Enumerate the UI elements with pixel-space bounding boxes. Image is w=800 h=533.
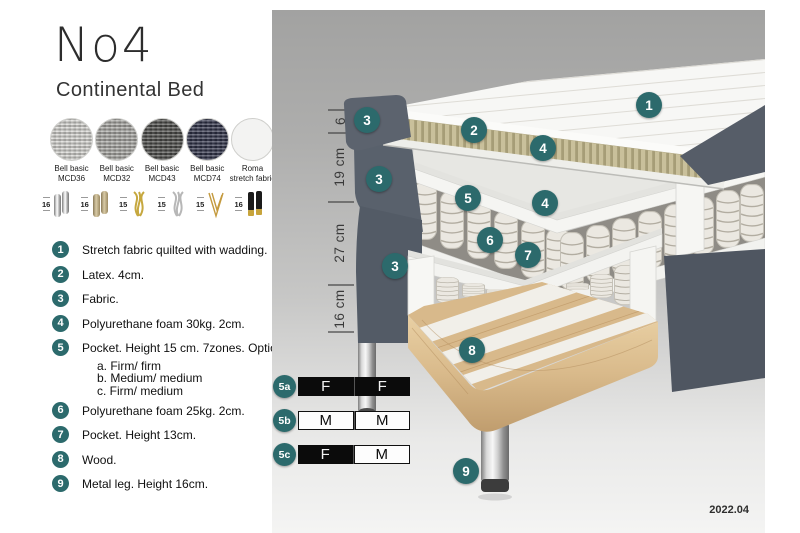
metal-leg-front (481, 424, 509, 481)
legend-number-badge: 2 (52, 266, 69, 283)
cylinder-bronze-leg-icon (91, 189, 111, 219)
legend-text: Wood. (82, 451, 116, 467)
legend-item: 3 Fabric. (52, 290, 267, 307)
legend-item: 8 Wood. (52, 451, 267, 468)
leg-option: 16 (42, 189, 81, 219)
fabric-swatch-icon (50, 118, 93, 161)
firmness-cell: M (298, 411, 354, 430)
legend-number-badge: 3 (52, 290, 69, 307)
leg-option: 15 (196, 189, 235, 219)
fabric-name: Roma (242, 164, 263, 173)
legend-item: 1 Stretch fabric quilted with wadding. (52, 241, 267, 258)
legend-text: Stretch fabric quilted with wadding. (82, 241, 267, 257)
fabric-name: Bell basic (54, 164, 88, 173)
callout-1: 1 (636, 92, 662, 118)
firmness-cell: M (355, 411, 411, 430)
legend-number-badge: 1 (52, 241, 69, 258)
pocket-options: a. Firm/ firm b. Medium/ medium c. Firm/… (97, 360, 267, 398)
twisted-gold-leg-icon (129, 189, 149, 219)
dim-label-base: 16 cm (332, 289, 347, 328)
leg-options: 16 16 15 15 (42, 189, 274, 219)
version-date: 2022.04 (709, 504, 749, 516)
callout-8: 8 (459, 337, 485, 363)
leg-height: 15 (158, 200, 166, 209)
firmness-5c-bar: F M (298, 445, 410, 464)
fabric-option: Bell basic MCD74 (185, 118, 230, 183)
firmness-5a-bar: F F (298, 377, 410, 396)
legend-text: Fabric. (82, 290, 119, 306)
leg-height: 16 (42, 200, 50, 209)
page: No4 Continental Bed Bell basic MCD36 Bel… (0, 0, 800, 533)
fabric-name: Bell basic (190, 164, 224, 173)
callout-3-mattress: 3 (366, 166, 392, 192)
legend-number-badge: 5 (52, 339, 69, 356)
leg-height: 16 (235, 200, 243, 209)
firmness-cell: M (354, 445, 411, 464)
legend-item: 6 Polyurethane foam 25kg. 2cm. (52, 402, 267, 419)
legend-number-badge: 9 (52, 475, 69, 492)
fabric-option: Bell basic MCD32 (94, 118, 139, 183)
fabric-name: Bell basic (145, 164, 179, 173)
callout-4-upper: 4 (530, 135, 556, 161)
cylinder-chrome-leg-icon (52, 189, 72, 219)
leg-option: 15 (119, 189, 158, 219)
metal-leg-back (358, 338, 376, 412)
callout-7: 7 (515, 242, 541, 268)
fabric-code: MCD32 (103, 174, 130, 183)
page-title: No4 (54, 18, 154, 73)
bed-illustration-panel: 6 19 cm 27 cm 16 cm (272, 10, 765, 533)
parts-legend: 1 Stretch fabric quilted with wadding. 2… (52, 241, 267, 500)
fabric-option: Bell basic MCD36 (49, 118, 94, 183)
legend-number-badge: 4 (52, 315, 69, 332)
fabric-swatch-icon (95, 118, 138, 161)
legend-text: Pocket. Height 15 cm. 7zones. Option: (82, 339, 287, 355)
leg-height: 16 (81, 200, 89, 209)
fabric-swatch-icon (141, 118, 184, 161)
fabric-swatch-icon (186, 118, 229, 161)
legend-item: 5 Pocket. Height 15 cm. 7zones. Option: (52, 339, 267, 356)
legend-text: Polyurethane foam 30kg. 2cm. (82, 315, 245, 331)
legend-text: Metal leg. Height 16cm. (82, 475, 208, 491)
legend-number-badge: 6 (52, 402, 69, 419)
firmness-5a-badge: 5a (273, 375, 296, 398)
pocket-option: c. Firm/ medium (97, 385, 267, 398)
firmness-5c-badge: 5c (273, 443, 296, 466)
page-subtitle: Continental Bed (56, 79, 204, 102)
legend-item: 4 Polyurethane foam 30kg. 2cm. (52, 315, 267, 332)
legend-text: Pocket. Height 13cm. (82, 426, 196, 442)
fabric-code: MCD74 (194, 174, 221, 183)
hairpin-gold-leg-icon (206, 189, 226, 219)
legend-number-badge: 7 (52, 426, 69, 443)
fabric-code: stretch fabric (230, 174, 276, 183)
fabric-swatch-icon (231, 118, 274, 161)
cylinder-black-gold-leg-icon (245, 189, 265, 219)
dim-label-middle: 27 cm (332, 223, 347, 262)
leg-option: 15 (158, 189, 197, 219)
callout-9: 9 (453, 458, 479, 484)
leg-height: 15 (119, 200, 127, 209)
firmness-5b-bar: M M (298, 411, 410, 430)
callout-2: 2 (461, 117, 487, 143)
callout-3-topper: 3 (354, 107, 380, 133)
fabric-swatches: Bell basic MCD36 Bell basic MCD32 Bell b… (49, 118, 275, 183)
fabric-option: Bell basic MCD43 (140, 118, 185, 183)
twisted-silver-leg-icon (168, 189, 188, 219)
callout-6: 6 (477, 227, 503, 253)
fabric-code: MCD36 (58, 174, 85, 183)
fabric-name: Bell basic (100, 164, 134, 173)
leg-height: 15 (196, 200, 204, 209)
firmness-cell: F (298, 377, 354, 396)
callout-4-lower: 4 (532, 190, 558, 216)
legend-number-badge: 8 (52, 451, 69, 468)
leg-option: 16 (81, 189, 120, 219)
callout-5: 5 (455, 185, 481, 211)
legend-item: 2 Latex. 4cm. (52, 266, 267, 283)
firmness-cell: F (298, 445, 353, 464)
firmness-5b-badge: 5b (273, 409, 296, 432)
firmness-cell: F (355, 377, 411, 396)
legend-text: Polyurethane foam 25kg. 2cm. (82, 402, 245, 418)
callout-3-base: 3 (382, 253, 408, 279)
legend-item: 9 Metal leg. Height 16cm. (52, 475, 267, 492)
dim-label-mattress: 19 cm (332, 147, 347, 186)
legend-item: 7 Pocket. Height 13cm. (52, 426, 267, 443)
legend-text: Latex. 4cm. (82, 266, 144, 282)
leg-option: 16 (235, 189, 274, 219)
fabric-option: Roma stretch fabric (230, 118, 275, 183)
fabric-code: MCD43 (148, 174, 175, 183)
